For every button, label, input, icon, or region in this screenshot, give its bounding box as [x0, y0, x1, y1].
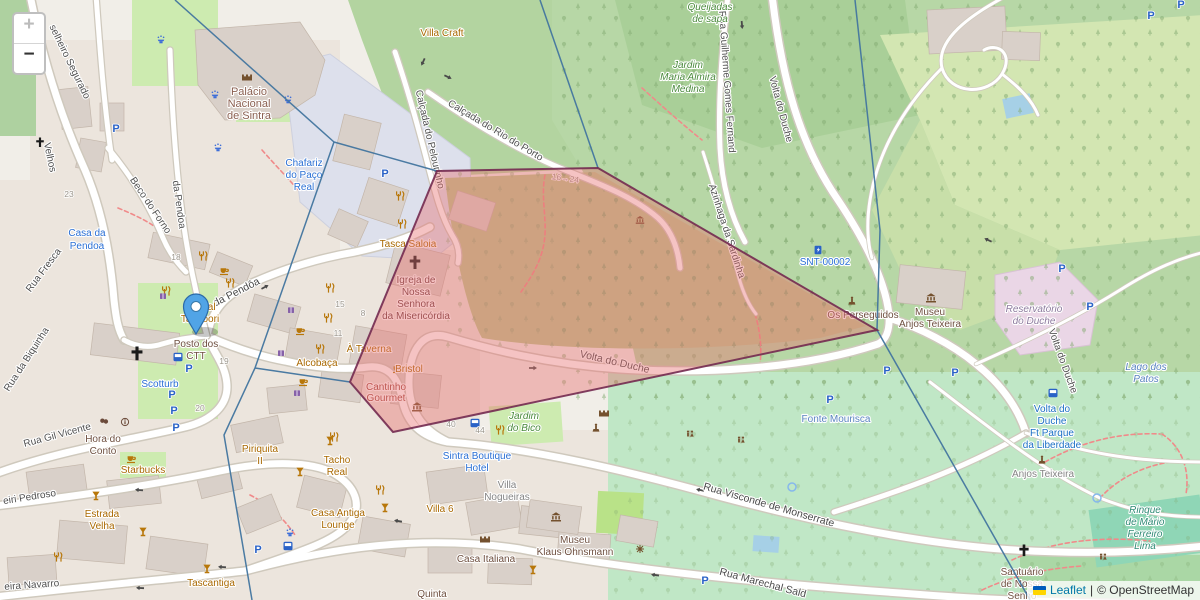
- poi-label: Estrada: [85, 509, 120, 520]
- place-label: Maria Almira: [660, 72, 716, 83]
- poi-label: Nacional: [228, 98, 271, 110]
- parking-icon: P: [826, 394, 833, 406]
- parking-icon: P: [170, 405, 177, 417]
- parking-icon: P: [185, 363, 192, 375]
- place-label: Rinque: [1129, 505, 1161, 516]
- poi-label: Klaus Ohnsmann: [537, 547, 614, 558]
- shop-label: Chafariz: [285, 158, 322, 169]
- bus-stop-icon: [284, 542, 293, 550]
- poi-label: Posto dos: [174, 339, 218, 350]
- castle-icon: [599, 411, 609, 417]
- statue-icon: [593, 424, 600, 432]
- housenumber-label: 20: [195, 403, 205, 413]
- parking-icon: P: [1147, 10, 1154, 22]
- poi-label: Museu: [560, 535, 590, 546]
- cafe-icon: [127, 456, 136, 463]
- place-label: Lima: [1134, 541, 1156, 552]
- shop-icon: [294, 390, 300, 396]
- housenumber-label: 19: [219, 356, 229, 366]
- marker-pin-dot: [191, 302, 201, 312]
- poi-label: Tascantiga: [187, 578, 235, 589]
- place-label: Anjos Teixeira: [1012, 469, 1075, 480]
- charging-station-icon: [815, 246, 822, 254]
- shop-label: Real: [294, 182, 315, 193]
- water-label: Patos: [1133, 374, 1159, 385]
- parking-icon: P: [381, 168, 388, 180]
- shop-icon: [160, 293, 166, 299]
- poi-label: Starbucks: [121, 465, 165, 476]
- poi-label: CTT: [186, 351, 205, 362]
- poi-label: Quinta: [417, 589, 447, 600]
- housenumber-label: 23: [64, 189, 74, 199]
- transit-stop-label: Duche: [1038, 416, 1067, 427]
- osm-attribution-link[interactable]: © OpenStreetMap: [1097, 583, 1194, 597]
- poi-label: Casa Antiga: [311, 508, 365, 519]
- place-label: de Mário: [1126, 517, 1165, 528]
- shop-label: Pendoa: [70, 241, 105, 252]
- place-label: de sapa: [692, 14, 728, 25]
- transit-stop-label: Volta do: [1034, 404, 1071, 415]
- poi-label: Tacho: [324, 455, 351, 466]
- parking-icon: P: [951, 367, 958, 379]
- poi-label: II: [257, 456, 263, 467]
- bus-stop-icon: [174, 353, 183, 361]
- place-label: Reservatório: [1006, 304, 1063, 315]
- poi-label: Palácio: [231, 86, 267, 98]
- poi-label: Lounge: [321, 520, 355, 531]
- parking-icon: P: [701, 575, 708, 587]
- poi-label: Real: [327, 467, 348, 478]
- poi-label: Piriquita: [242, 444, 279, 455]
- cafe-icon: [220, 268, 229, 275]
- leaflet-attribution-link[interactable]: Leaflet: [1050, 583, 1086, 597]
- poi-label: Anjos Teixeira: [899, 319, 962, 330]
- housenumber-label: 18: [171, 252, 181, 262]
- poi-label: Conto: [90, 446, 117, 457]
- zoom-out-button[interactable]: −: [14, 43, 44, 73]
- map-tiles: P P P P P P P P P P P P P P P selheiro S…: [0, 0, 1200, 600]
- housenumber-label: 44: [475, 425, 485, 435]
- shop-label: SNT-00002: [800, 257, 851, 268]
- cafe-icon: [299, 379, 308, 386]
- poi-label: Villa Craft: [420, 28, 463, 39]
- poi-label: Alcobaça: [296, 358, 338, 369]
- shop-label: Casa da: [68, 228, 106, 239]
- place-label: Nogueiras: [484, 492, 530, 503]
- water-label: Fonte Mourisca: [802, 414, 871, 425]
- castle-icon: [480, 537, 490, 543]
- shop-icon: [288, 307, 294, 313]
- place-label: Queijadas: [687, 2, 732, 13]
- poi-label: Casa Italiana: [457, 554, 516, 565]
- shop-label: Scotturb: [141, 379, 179, 390]
- place-label: do Duche: [1013, 316, 1056, 327]
- parking-icon: P: [172, 422, 179, 434]
- place-label: Villa: [498, 480, 517, 491]
- bus-stop-icon: [1049, 389, 1058, 397]
- map-canvas[interactable]: P P P P P P P P P P P P P P P selheiro S…: [0, 0, 1200, 600]
- shop-label: Sintra Boutique: [443, 451, 512, 462]
- poi-label: Museu: [915, 307, 945, 318]
- attribution-separator: |: [1090, 583, 1093, 597]
- place-label: Jardim: [672, 60, 703, 71]
- place-label: Ferreiro: [1127, 529, 1162, 540]
- water-label: Lago dos: [1125, 362, 1166, 373]
- transit-stop-label: Ft Parque: [1030, 428, 1074, 439]
- attribution-bar: Leaflet | © OpenStreetMap: [1027, 581, 1200, 600]
- housenumber-label: 15: [335, 299, 345, 309]
- housenumber-label: 11: [334, 328, 343, 338]
- cafe-icon: [296, 328, 305, 335]
- poi-label: de Sintra: [227, 110, 272, 122]
- housenumber-label: 8: [361, 308, 366, 318]
- parking-icon: P: [1058, 263, 1065, 275]
- poi-label: Velha: [89, 521, 114, 532]
- poi-label: Villa 6: [426, 504, 453, 515]
- parking-icon: P: [254, 544, 261, 556]
- parking-icon: P: [883, 365, 890, 377]
- shop-label: Hotel: [465, 463, 488, 474]
- zoom-control: + −: [12, 12, 46, 75]
- shop-icon: [278, 350, 284, 356]
- place-label: do Bico: [507, 423, 541, 434]
- parking-icon: P: [1086, 301, 1093, 313]
- parking-icon: P: [1177, 0, 1184, 11]
- transit-stop-label: da Liberdade: [1023, 440, 1082, 451]
- place-label: Medina: [672, 84, 705, 95]
- parking-icon: P: [168, 389, 175, 401]
- poi-label: Hora do: [85, 434, 121, 445]
- place-label: Jardim: [508, 411, 539, 422]
- parking-icon: P: [112, 123, 119, 135]
- shop-label: do Paço: [286, 170, 323, 181]
- poi-label: Santuário: [1001, 567, 1044, 578]
- castle-icon: [242, 75, 252, 81]
- zoom-in-button[interactable]: +: [14, 14, 44, 43]
- watermill-icon: [636, 545, 644, 553]
- ukraine-flag-icon: [1033, 586, 1046, 595]
